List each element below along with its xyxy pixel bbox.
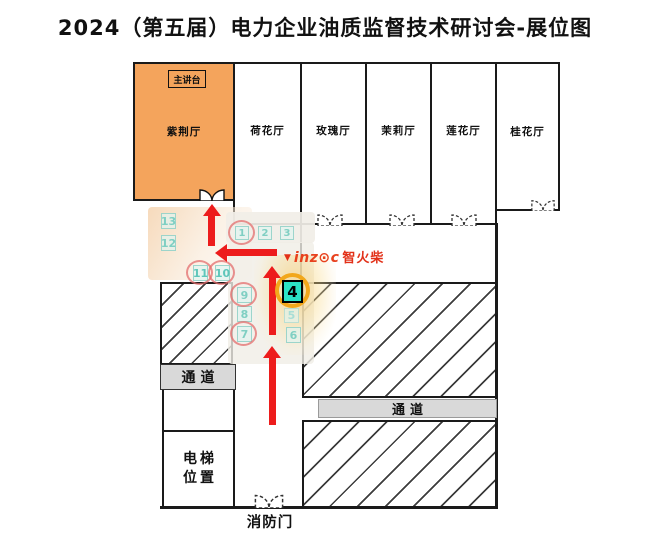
- booth-7-circle-marker: [230, 321, 257, 346]
- room-meigui-hall: 玫瑰厅: [300, 62, 367, 225]
- corridor-right-band: 通道: [318, 399, 497, 418]
- room-hehua-hall: 荷花厅: [233, 62, 302, 225]
- page-title: 2024（第五届）电力企业油质监督技术研讨会-展位图: [0, 12, 650, 42]
- logo-name-text: 智火柴: [342, 252, 384, 265]
- logo-brand-text: inz⊙c: [294, 251, 339, 265]
- booth-9-circle-marker: [230, 282, 257, 307]
- door-guihua-icon: [530, 197, 556, 211]
- door-moli-icon: [388, 211, 416, 226]
- room-label-hehua: 荷花厅: [250, 123, 285, 138]
- room-label-zijing: 紫荆厅: [167, 124, 202, 139]
- booth-8: 8: [237, 306, 252, 322]
- booth-2: 2: [258, 226, 272, 240]
- room-label-meigui: 玫瑰厅: [316, 123, 351, 138]
- hatched-area-left: [160, 282, 233, 365]
- route-arrow-2-shaft: [227, 249, 277, 256]
- booth-13: 13: [161, 213, 176, 229]
- inzoc-logo: ▼ inz⊙c 智火柴: [284, 251, 384, 265]
- elevator-location-box: 电梯 位置: [162, 430, 235, 508]
- room-lianhua-hall: 莲花厅: [430, 62, 497, 225]
- route-arrow-3-up-icon: [263, 266, 281, 278]
- booth-3: 3: [280, 226, 294, 240]
- room-guihua-hall: 桂花厅: [495, 62, 560, 211]
- elevator-label-line1: 电梯: [183, 450, 217, 469]
- route-arrow-4-shaft: [269, 357, 276, 425]
- floor-plan-canvas: 2024（第五届）电力企业油质监督技术研讨会-展位图 紫荆厅 荷花厅 玫瑰厅 茉…: [0, 0, 650, 536]
- fire-door-label: 消防门: [236, 511, 304, 532]
- route-arrow-4-up-icon: [263, 346, 281, 358]
- main-stage-box: 主讲台: [168, 70, 206, 88]
- elevator-label-line2: 位置: [183, 469, 217, 488]
- room-label-moli: 茉莉厅: [381, 123, 416, 138]
- room-moli-hall: 茉莉厅: [365, 62, 432, 225]
- booth-6: 6: [286, 327, 301, 343]
- corridor-left-band: 通道: [160, 364, 236, 390]
- route-arrow-1-shaft: [208, 215, 215, 246]
- booth-11-circle-marker: [186, 260, 213, 285]
- fire-door-icon: [252, 491, 286, 508]
- hatched-area-bottom: [302, 420, 497, 508]
- logo-triangle-icon: ▼: [284, 254, 291, 263]
- room-label-guihua: 桂花厅: [510, 124, 545, 139]
- door-meigui-icon: [316, 211, 344, 226]
- door-lianhua-icon: [450, 211, 478, 226]
- route-arrow-1-up-icon: [203, 204, 221, 216]
- room-label-lianhua: 莲花厅: [446, 123, 481, 138]
- booth-1-circle-marker: [228, 220, 255, 245]
- booth-12: 12: [161, 235, 176, 251]
- door-zijing-icon: [198, 186, 226, 201]
- empty-room-box: [162, 388, 235, 432]
- booth-4-highlighted: 4: [282, 280, 303, 303]
- route-arrow-2-left-icon: [215, 244, 227, 262]
- booth-5: 5: [284, 308, 299, 323]
